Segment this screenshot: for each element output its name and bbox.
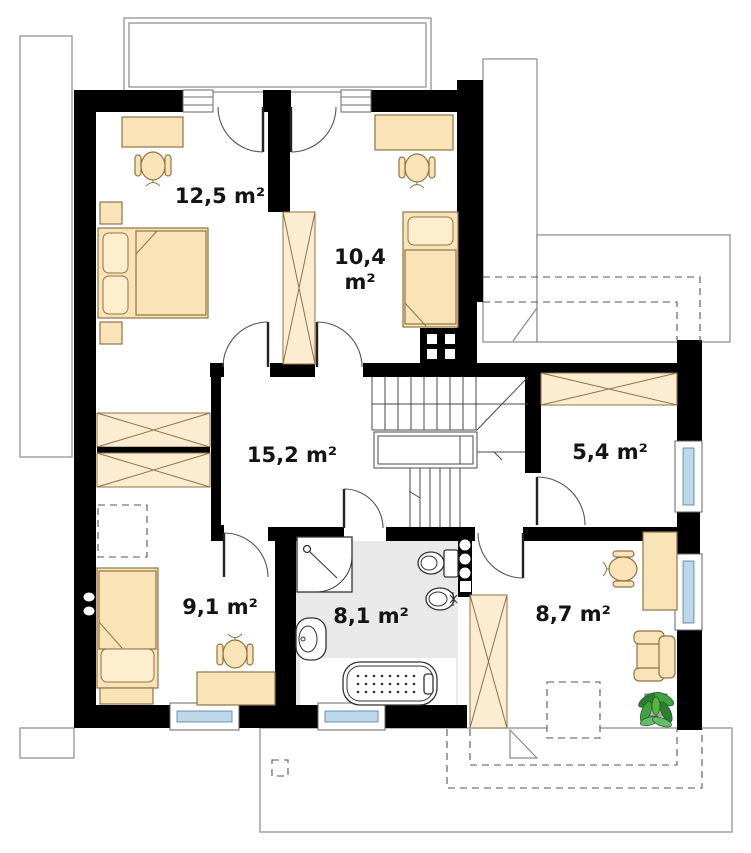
area-label-bedroom-bottom-left: 9,1 m² [182,595,258,619]
area-label-bedroom-top-right: 10,4 [334,245,386,269]
door-room-bottom-right [478,533,523,578]
washbasin [296,618,326,660]
double-bed [98,228,208,318]
wardrobe [97,413,210,447]
roof-eave-right [537,235,730,342]
door-bathroom [344,489,383,528]
roof-eave-bottom-left [20,728,74,758]
area-label-hall: 15,2 m² [247,443,337,467]
armchair [634,631,675,681]
office-chair [135,152,171,186]
door-bedroom-bottom-left [224,533,268,577]
door-bedroom-top-right [317,322,362,367]
office-chair [217,634,253,668]
office-chair [603,551,637,587]
area-label-wardrobe-room: 5,4 m² [572,440,648,464]
desk [375,115,453,150]
wardrobe [97,453,210,487]
roof-eave-left [20,36,72,457]
roof-eave-top-right [483,59,537,342]
staircase [372,377,528,527]
area-unit-bedroom-top-right: m² [344,270,375,294]
door-bedroom-top-left [223,322,268,367]
roof-window-room [547,682,600,738]
desk [643,532,677,610]
balcony [124,18,431,92]
single-bed [403,212,458,327]
shower [297,537,352,592]
toilet [418,550,458,577]
area-label-bedroom-top-left: 12,5 m² [175,184,265,208]
wardrobe [283,212,315,364]
single-bed [97,568,158,704]
office-chair [399,154,435,188]
door-wardrobe-room [537,477,585,525]
sidelight-window-right [341,90,371,112]
sidelight-window-left [183,90,213,112]
terrace-outline [260,728,732,832]
wardrobe [541,373,677,405]
nightstand [100,322,122,344]
floor-plan: 12,5 m² 10,4 m² 15,2 m² 5,4 m² 9,1 m² 8,… [0,0,751,853]
balcony-door-right [291,107,336,152]
wardrobe [470,595,507,728]
roof-window-bedroom [98,505,147,557]
nightstand [100,202,122,224]
balcony-door-left [218,107,263,152]
area-label-bathroom: 8,1 m² [333,604,409,628]
bathtub [343,662,437,705]
floor-plan-svg: 12,5 m² 10,4 m² 15,2 m² 5,4 m² 9,1 m² 8,… [0,0,751,853]
wardrobe-divider-wall [97,447,210,453]
area-label-room-bottom-right: 8,7 m² [535,602,611,626]
desk [197,672,275,705]
desk [122,117,183,147]
potted-plant [636,690,675,730]
